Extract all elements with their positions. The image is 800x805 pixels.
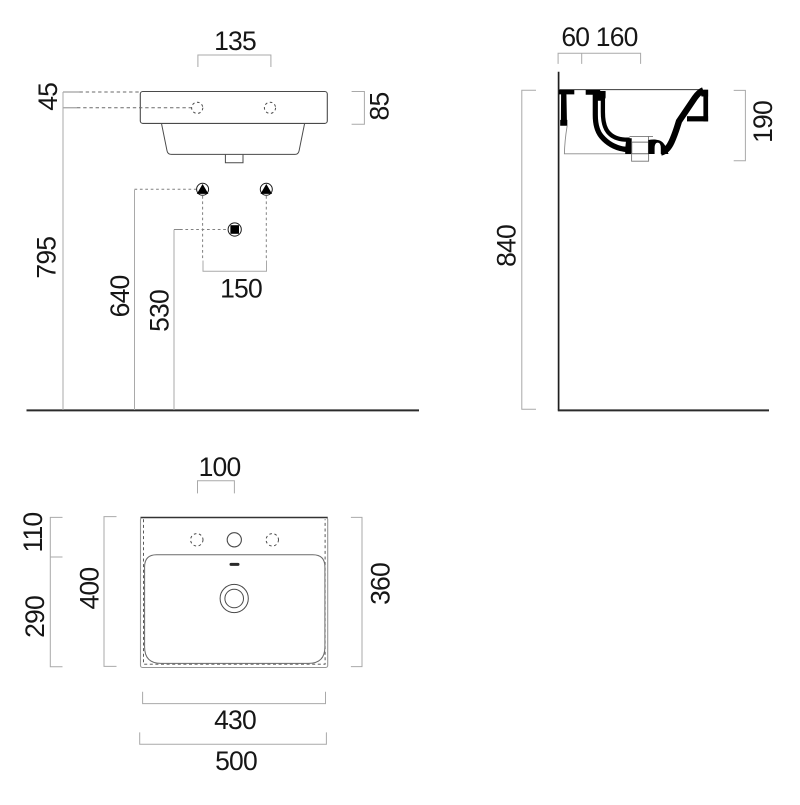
svg-text:500: 500 [215,746,257,776]
svg-text:530: 530 [144,290,174,332]
svg-text:400: 400 [74,568,104,610]
svg-text:45: 45 [33,83,63,111]
svg-text:795: 795 [31,237,61,279]
svg-text:85: 85 [364,93,394,121]
svg-text:290: 290 [20,596,50,638]
svg-text:100: 100 [199,452,241,482]
svg-text:150: 150 [220,274,262,304]
svg-text:110: 110 [18,513,48,553]
svg-text:360: 360 [365,563,395,605]
svg-text:190: 190 [748,101,778,143]
svg-text:135: 135 [214,26,256,56]
svg-text:60 160: 60 160 [561,22,637,52]
svg-text:840: 840 [491,225,521,267]
svg-text:640: 640 [105,275,135,317]
svg-text:430: 430 [214,705,256,735]
